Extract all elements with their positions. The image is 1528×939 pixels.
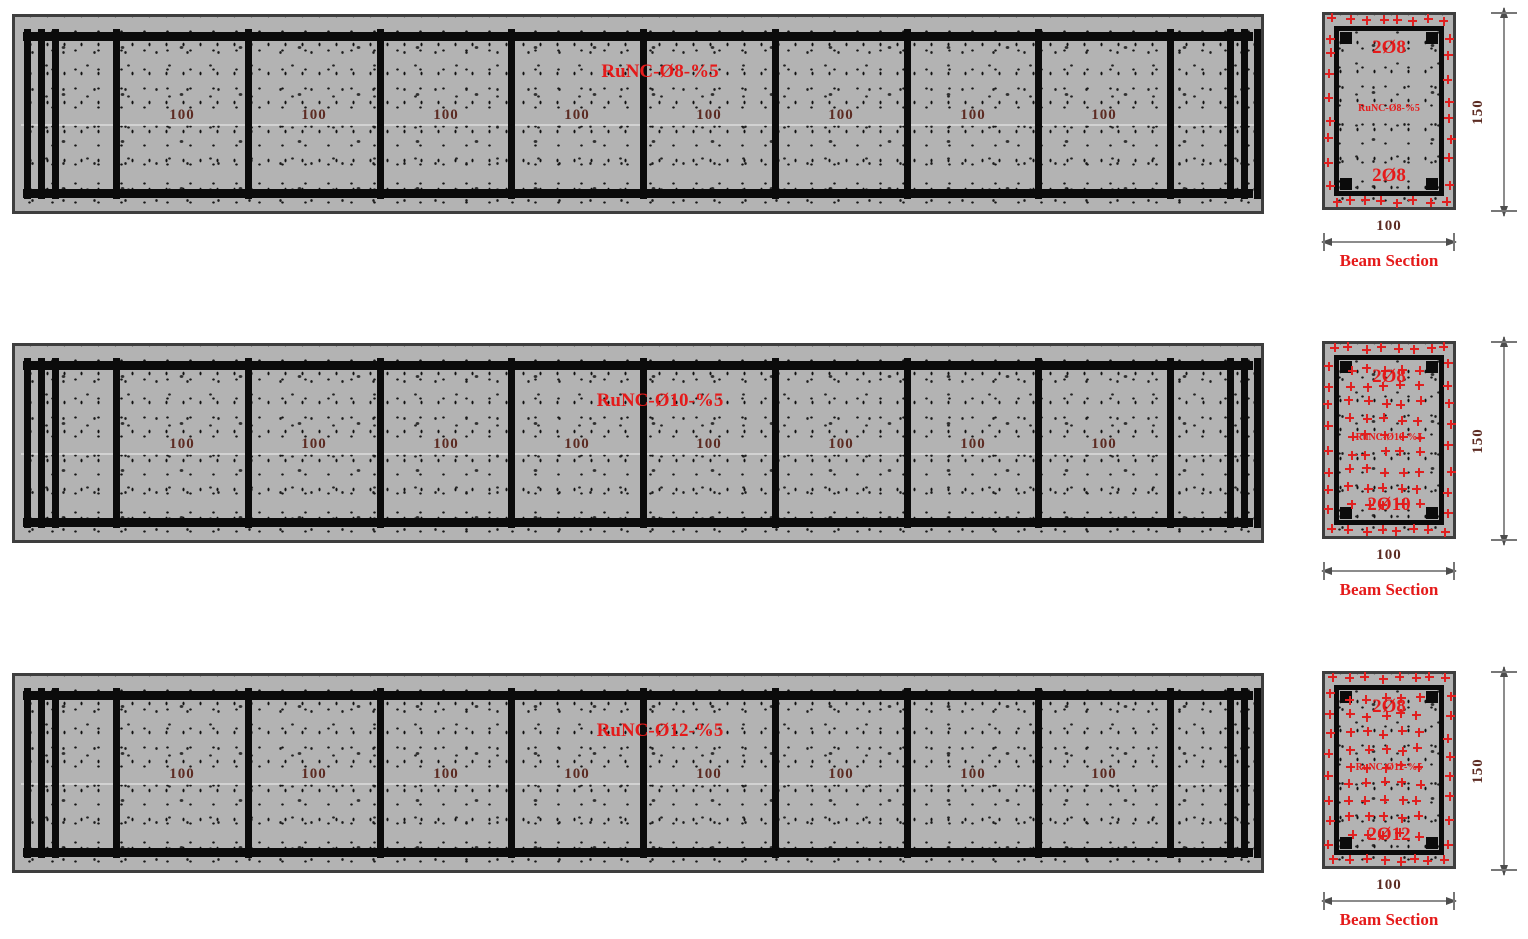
dimension-line: [1322, 900, 1456, 902]
fiber-mark: [1423, 856, 1432, 865]
fiber-mark: [1378, 525, 1387, 534]
section-mix-label: RuNC-Ø10-%5: [1325, 432, 1453, 443]
beam-label: RuNC-Ø10-%5: [597, 390, 724, 412]
dimension-tick: [1453, 892, 1455, 910]
beam-row: 100100100100100100100100 RuNC-Ø10-%5 2Ø8…: [0, 343, 1528, 663]
fiber-mark: [1446, 752, 1455, 761]
fiber-mark: [1398, 814, 1407, 823]
bottom-bars-label: 2Ø10: [1325, 494, 1453, 516]
dimension-tick: [1491, 12, 1517, 14]
dimension-tick: [1323, 562, 1325, 580]
fiber-mark: [1365, 745, 1374, 754]
fiber-mark: [1381, 447, 1390, 456]
fiber-mark: [1439, 342, 1448, 351]
fiber-mark: [1398, 416, 1407, 425]
fiber-mark: [1443, 734, 1452, 743]
fiber-mark: [1443, 75, 1452, 84]
fiber-mark: [1413, 743, 1422, 752]
fiber-mark: [1378, 483, 1387, 492]
fiber-mark: [1394, 344, 1403, 353]
fiber-mark: [1395, 672, 1404, 681]
stirrup-spacing-value: 100: [116, 766, 248, 783]
stirrup-spacing-value: 100: [643, 107, 775, 124]
width-dimension-value: 100: [1322, 218, 1456, 235]
fiber-mark: [1447, 135, 1456, 144]
fiber-mark: [1362, 16, 1371, 25]
dimension-tick: [1491, 539, 1517, 541]
arrow-right-icon: [1446, 897, 1457, 905]
fiber-mark: [1363, 414, 1372, 423]
fiber-mark: [1327, 524, 1336, 533]
stirrup-spacing-labels: 100100100100100100100100: [15, 676, 1261, 870]
fiber-mark: [1344, 779, 1353, 788]
stirrup-spacing-value: 100: [511, 107, 643, 124]
fiber-mark: [1346, 15, 1355, 24]
bottom-bars-label: 2Ø8: [1325, 165, 1453, 187]
fiber-mark: [1398, 484, 1407, 493]
fiber-mark: [1360, 672, 1369, 681]
fiber-mark: [1408, 17, 1417, 26]
width-dimension: 100: [1322, 570, 1456, 572]
fiber-mark: [1379, 675, 1388, 684]
stirrup-spacing-value: 100: [775, 107, 907, 124]
fiber-mark: [1379, 413, 1388, 422]
beam-label: RuNC-Ø8-%5: [601, 61, 718, 83]
fiber-mark: [1361, 451, 1370, 460]
fiber-mark: [1424, 525, 1433, 534]
stirrup-spacing-value: 100: [248, 436, 380, 453]
fiber-mark: [1324, 93, 1333, 102]
fiber-mark: [1447, 420, 1456, 429]
section-caption: Beam Section: [1312, 910, 1466, 930]
fiber-mark: [1343, 342, 1352, 351]
fiber-mark: [1439, 17, 1448, 26]
fiber-mark: [1379, 812, 1388, 821]
fiber-mark: [1380, 795, 1389, 804]
section-mix-label: RuNC-Ø12-%5: [1325, 762, 1453, 773]
stirrup-spacing-labels: 100100100100100100100100: [15, 346, 1261, 540]
fiber-mark: [1399, 796, 1408, 805]
fiber-mark: [1413, 417, 1422, 426]
stirrup-spacing-value: 100: [248, 107, 380, 124]
fiber-mark: [1364, 396, 1373, 405]
fiber-mark: [1324, 133, 1333, 142]
fiber-mark: [1324, 485, 1333, 494]
fiber-mark: [1345, 673, 1354, 682]
fiber-mark: [1362, 464, 1371, 473]
height-dimension-value: 150: [1468, 419, 1488, 463]
drawing-canvas: 100100100100100100100100 RuNC-Ø8-%5 2Ø8 …: [0, 0, 1528, 939]
fiber-mark: [1362, 778, 1371, 787]
stirrup-spacing-labels: 100100100100100100100100: [15, 17, 1261, 211]
fiber-mark: [1398, 726, 1407, 735]
fiber-mark: [1344, 796, 1353, 805]
fiber-mark: [1365, 812, 1374, 821]
fiber-mark: [1363, 727, 1372, 736]
stirrup-spacing-value: 100: [643, 766, 775, 783]
arrow-right-icon: [1446, 567, 1457, 575]
beam-cross-section: 2Ø8 RuNC-Ø12-%5 2Ø12: [1322, 671, 1456, 869]
dimension-tick: [1491, 341, 1517, 343]
fiber-mark: [1399, 468, 1408, 477]
fiber-mark: [1324, 749, 1333, 758]
height-dimension-value: 150: [1468, 749, 1488, 793]
fiber-mark: [1414, 811, 1423, 820]
beam-row: 100100100100100100100100 RuNC-Ø12-%5 2Ø8…: [0, 673, 1528, 939]
fiber-mark: [1442, 197, 1451, 206]
fiber-mark: [1363, 854, 1372, 863]
section-caption: Beam Section: [1312, 251, 1466, 271]
fiber-mark: [1380, 468, 1389, 477]
beam-elevation: 100100100100100100100100 RuNC-Ø10-%5: [12, 343, 1264, 543]
fiber-mark: [1412, 673, 1421, 682]
stirrup-spacing-value: 100: [380, 436, 512, 453]
fiber-mark: [1344, 482, 1353, 491]
fiber-mark: [1408, 196, 1417, 205]
stirrup-spacing-value: 100: [511, 436, 643, 453]
stirrup-spacing-value: 100: [907, 766, 1039, 783]
fiber-mark: [1416, 447, 1425, 456]
fiber-mark: [1441, 528, 1450, 537]
stirrup-spacing-value: 100: [1038, 107, 1170, 124]
dimension-tick: [1453, 562, 1455, 580]
width-dimension-value: 100: [1322, 877, 1456, 894]
top-bars-label: 2Ø8: [1325, 696, 1453, 718]
arrow-right-icon: [1446, 238, 1457, 246]
top-bars-label: 2Ø8: [1325, 37, 1453, 59]
beam-elevation: 100100100100100100100100 RuNC-Ø8-%5: [12, 14, 1264, 214]
fiber-mark: [1348, 451, 1357, 460]
dimension-tick: [1323, 892, 1325, 910]
fiber-mark: [1380, 15, 1389, 24]
stirrup-spacing-value: 100: [775, 436, 907, 453]
fiber-mark: [1379, 730, 1388, 739]
fiber-mark: [1412, 796, 1421, 805]
fiber-mark: [1396, 400, 1405, 409]
fiber-mark: [1381, 777, 1390, 786]
fiber-mark: [1412, 485, 1421, 494]
fiber-mark: [1393, 15, 1402, 24]
dimension-line: [1503, 8, 1505, 216]
width-dimension-value: 100: [1322, 547, 1456, 564]
fiber-mark: [1345, 413, 1354, 422]
fiber-mark: [1329, 855, 1338, 864]
dimension-line: [1322, 570, 1456, 572]
dimension-tick: [1491, 671, 1517, 673]
fiber-mark: [1393, 199, 1402, 208]
fiber-mark: [1381, 856, 1390, 865]
fiber-mark: [1363, 527, 1372, 536]
fiber-mark: [1397, 778, 1406, 787]
fiber-mark: [1330, 343, 1339, 352]
fiber-mark: [1424, 14, 1433, 23]
fiber-mark: [1392, 527, 1401, 536]
fiber-mark: [1440, 855, 1449, 864]
fiber-mark: [1324, 446, 1333, 455]
beam-cross-section: 2Ø8 RuNC-Ø10-%5 2Ø10: [1322, 341, 1456, 539]
fiber-mark: [1346, 728, 1355, 737]
fiber-mark: [1416, 396, 1425, 405]
fiber-mark: [1445, 399, 1454, 408]
fiber-mark: [1445, 792, 1454, 801]
fiber-mark: [1344, 396, 1353, 405]
dimension-tick: [1323, 233, 1325, 251]
fiber-mark: [1345, 855, 1354, 864]
height-dimension-value: 150: [1468, 90, 1488, 134]
dimension-tick: [1453, 233, 1455, 251]
fiber-mark: [1425, 672, 1434, 681]
fiber-mark: [1333, 198, 1342, 207]
fiber-mark: [1362, 345, 1371, 354]
stirrup-spacing-value: 100: [511, 766, 643, 783]
stirrup-spacing-value: 100: [907, 107, 1039, 124]
stirrup-spacing-value: 100: [907, 436, 1039, 453]
fiber-mark: [1346, 746, 1355, 755]
stirrup-spacing-value: 100: [775, 766, 907, 783]
fiber-mark: [1346, 196, 1355, 205]
fiber-mark: [1382, 399, 1391, 408]
fiber-mark: [1326, 729, 1335, 738]
beam-label: RuNC-Ø12-%5: [597, 720, 724, 742]
fiber-mark: [1444, 114, 1453, 123]
fiber-mark: [1361, 196, 1370, 205]
fiber-mark: [1447, 467, 1456, 476]
fiber-mark: [1345, 464, 1354, 473]
fiber-mark: [1328, 673, 1337, 682]
width-dimension: 100: [1322, 900, 1456, 902]
section-caption: Beam Section: [1312, 580, 1466, 600]
fiber-mark: [1416, 780, 1425, 789]
stirrup-spacing-value: 100: [380, 107, 512, 124]
fiber-mark: [1444, 153, 1453, 162]
fiber-mark: [1324, 468, 1333, 477]
stirrup-spacing-value: 100: [116, 436, 248, 453]
height-dimension: 150: [1494, 8, 1514, 216]
stirrup-spacing-value: 100: [116, 107, 248, 124]
fiber-mark: [1345, 812, 1354, 821]
fiber-mark: [1410, 854, 1419, 863]
fiber-mark: [1410, 345, 1419, 354]
stirrup-spacing-value: 100: [380, 766, 512, 783]
fiber-mark: [1376, 196, 1385, 205]
fiber-mark: [1344, 525, 1353, 534]
fiber-mark: [1326, 117, 1335, 126]
fiber-mark: [1382, 745, 1391, 754]
dimension-line: [1503, 337, 1505, 545]
fiber-mark: [1324, 796, 1333, 805]
fiber-mark: [1426, 198, 1435, 207]
fiber-mark: [1324, 421, 1333, 430]
dimension-tick: [1491, 869, 1517, 871]
beam-row: 100100100100100100100100 RuNC-Ø8-%5 2Ø8 …: [0, 14, 1528, 334]
fiber-mark: [1361, 796, 1370, 805]
stirrup-spacing-value: 100: [1038, 436, 1170, 453]
fiber-mark: [1377, 343, 1386, 352]
dimension-line: [1503, 667, 1505, 875]
stirrup-spacing-value: 100: [643, 436, 775, 453]
fiber-mark: [1325, 69, 1334, 78]
fiber-mark: [1395, 447, 1404, 456]
stirrup-spacing-value: 100: [248, 766, 380, 783]
top-bars-label: 2Ø8: [1325, 366, 1453, 388]
fiber-mark: [1445, 772, 1454, 781]
fiber-mark: [1364, 484, 1373, 493]
bottom-bars-label: 2Ø12: [1325, 824, 1453, 846]
fiber-mark: [1415, 468, 1424, 477]
beam-elevation: 100100100100100100100100 RuNC-Ø12-%5: [12, 673, 1264, 873]
fiber-mark: [1409, 524, 1418, 533]
height-dimension: 150: [1494, 337, 1514, 545]
height-dimension: 150: [1494, 667, 1514, 875]
fiber-mark: [1415, 728, 1424, 737]
beam-cross-section: 2Ø8 RuNC-Ø8-%5 2Ø8: [1322, 12, 1456, 210]
fiber-mark: [1397, 857, 1406, 866]
width-dimension: 100: [1322, 241, 1456, 243]
dimension-line: [1322, 241, 1456, 243]
fiber-mark: [1398, 747, 1407, 756]
fiber-mark: [1323, 400, 1332, 409]
section-mix-label: RuNC-Ø8-%5: [1325, 103, 1453, 114]
dimension-tick: [1491, 210, 1517, 212]
fiber-mark: [1327, 13, 1336, 22]
fiber-mark: [1441, 673, 1450, 682]
fiber-mark: [1427, 344, 1436, 353]
stirrup-spacing-value: 100: [1038, 766, 1170, 783]
